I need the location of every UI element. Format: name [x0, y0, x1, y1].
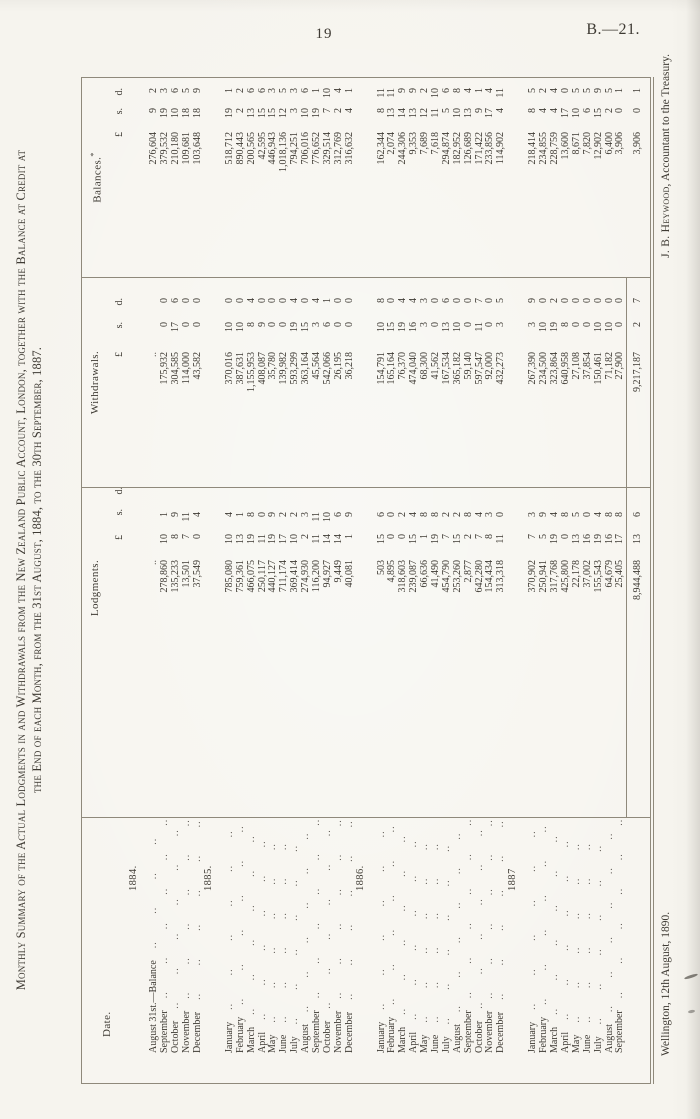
- lodg-shillings-value: 11: [258, 534, 268, 560]
- date-cell: September: [615, 818, 626, 1083]
- bal-shillings-value: 19: [160, 108, 170, 132]
- pence-symbol: d.: [115, 88, 125, 108]
- lodg-shillings-value: 13: [236, 534, 246, 560]
- lodg-cell: 64,679168: [604, 488, 615, 818]
- bal-cell: 379,532193: [160, 78, 171, 278]
- lodg-shillings-value: 0: [387, 534, 397, 560]
- lodg-shillings-value: 8: [485, 534, 495, 560]
- with-shillings-value: 0: [464, 322, 474, 352]
- bal-cell: 200,565136: [246, 78, 257, 278]
- with-shillings-value: 19: [398, 322, 408, 352]
- bal-pence-value: 6: [171, 88, 181, 108]
- bal-pounds-value: 7,618: [431, 132, 441, 210]
- lodg-pounds-value: 253,260: [453, 560, 463, 638]
- with-pounds-value: 1,155,953: [247, 352, 257, 430]
- table-row: July454,79072167,534136294,87456: [441, 78, 452, 1083]
- bal-pounds-value: 8,671: [572, 132, 582, 210]
- date-cell: September: [160, 818, 171, 1083]
- with-cell: 593,299194: [290, 278, 301, 488]
- bal-pounds-value: 109,681: [182, 132, 192, 210]
- month-label: January: [528, 1022, 538, 1053]
- month-label: June: [431, 1035, 441, 1053]
- bal-shillings-value: 4: [345, 108, 355, 132]
- with-pounds-value: 35,780: [268, 352, 278, 430]
- with-pounds-value: 363,164: [301, 352, 311, 430]
- lodg-pence-value: 8: [615, 512, 625, 534]
- dot-leaders: [605, 818, 615, 1012]
- lodg-pounds-value: 155,543: [594, 560, 604, 638]
- with-pounds-value: 304,585: [171, 352, 181, 430]
- table-row: February4,89500165,1641502,0741311: [387, 78, 398, 1083]
- lodg-shillings-value: 19: [550, 534, 560, 560]
- bal-shillings-value: 18: [193, 108, 203, 132]
- bal-cell: 171,42291: [474, 78, 485, 278]
- with-shillings-value: 15: [301, 322, 311, 352]
- with-cell: 363,164150: [301, 278, 312, 488]
- lodg-cell: 454,79072: [441, 488, 452, 818]
- with-shillings-value: 10: [225, 322, 235, 352]
- bal-pounds-value: 518,712: [225, 132, 235, 210]
- bal-cell: 42,595156: [257, 78, 268, 278]
- with-shillings-value: 15: [387, 322, 397, 352]
- bal-pence-value: 11: [387, 88, 397, 108]
- table-row: September2,8772859,14000126,689134: [463, 78, 474, 1083]
- lodg-shillings-value: 11: [496, 534, 506, 560]
- table-row: October135,23389304,585176210,180106: [171, 78, 182, 1083]
- table-row: July369,414102593,299194794,25133: [290, 78, 301, 1083]
- pounds-symbol: £: [115, 352, 125, 430]
- with-pounds-value: 43,582: [193, 352, 203, 430]
- bal-pounds-value: 171,422: [475, 132, 485, 210]
- year-row: 1886.: [355, 78, 376, 1083]
- bal-shillings-value: 5: [442, 108, 452, 132]
- with-cell: 542,06661: [322, 278, 333, 488]
- dot-leaders: [182, 818, 192, 999]
- bal-pounds-value: 218,414: [528, 132, 538, 210]
- lodg-pounds-value: 41,490: [431, 560, 441, 638]
- table-row: January503156154,791108162,344811: [376, 78, 387, 1083]
- date-cell: March: [398, 818, 409, 1083]
- lodg-shillings-value: 1: [345, 534, 355, 560]
- lodg-cell: 2,87728: [463, 488, 474, 818]
- table-row: December37,5490443,58200103,648189: [193, 78, 204, 1083]
- bal-shillings-value: 17: [561, 108, 571, 132]
- with-cell: 71,182100: [604, 278, 615, 488]
- dot-leaders: [594, 818, 604, 1024]
- lodg-pounds-value: 116,200: [312, 560, 322, 638]
- lodg-pounds-value: 250,117: [258, 560, 268, 638]
- with-pounds-value: ..: [149, 352, 159, 430]
- bal-shillings-value: 4: [496, 108, 506, 132]
- with-shillings-value: 17: [171, 322, 181, 352]
- with-shillings-value: 3: [312, 322, 322, 352]
- lodg-pence-value: 0: [258, 512, 268, 534]
- with-cell: ..: [149, 278, 160, 488]
- lodgments-header-label: Lodgments.: [89, 488, 101, 688]
- lodg-cell: 40,08119: [344, 488, 355, 818]
- totals-lodgments-shillings: 13: [633, 534, 643, 560]
- with-shillings-value: 0: [334, 322, 344, 352]
- month-label: August 31st.—Balance: [149, 960, 159, 1053]
- with-cell: 304,585176: [171, 278, 182, 488]
- with-pence-value: 4: [312, 298, 322, 322]
- date-cell: December: [344, 818, 355, 1083]
- with-pounds-value: 365,182: [453, 352, 463, 430]
- lodg-cell: 759,361131: [235, 488, 246, 818]
- bal-pounds-value: 794,251: [290, 132, 300, 210]
- bal-cell: 233,856174: [485, 78, 496, 278]
- lodg-pence-value: 9: [539, 512, 549, 534]
- withdrawals-currency-subheader: £ s. d.: [115, 278, 125, 487]
- title-line-2: the End of each Month, from the 31st Aug…: [30, 50, 45, 1090]
- with-shillings-value: 10: [453, 322, 463, 352]
- with-cell: 640,95880: [561, 278, 572, 488]
- date-cell: August: [604, 818, 615, 1083]
- bal-pence-value: 11: [377, 88, 387, 108]
- balances-header-text: Balances.: [92, 157, 104, 203]
- lodg-pounds-value: 503: [377, 560, 387, 638]
- with-cell: 92,00000: [485, 278, 496, 488]
- month-label: May: [268, 1035, 278, 1053]
- year-row: 1885.: [203, 78, 224, 1083]
- month-label: August: [301, 1024, 311, 1053]
- lodg-pence-value: 0: [496, 512, 506, 534]
- totals-row: 8,944,488 13 6 9,217,187 2 7 3,906 0 1: [626, 78, 650, 1083]
- lodg-cell: 25,405178: [615, 488, 626, 818]
- bal-pounds-value: 312,769: [334, 132, 344, 210]
- with-cell: 597,547117: [474, 278, 485, 488]
- bal-pence-value: 2: [420, 88, 430, 108]
- bal-shillings-value: 7: [323, 108, 333, 132]
- lodg-cell: 4,89500: [387, 488, 398, 818]
- with-pence-value: 0: [485, 298, 495, 322]
- with-cell: 41,56200: [431, 278, 442, 488]
- bal-cell: 890,44322: [235, 78, 246, 278]
- month-label: December: [496, 1012, 506, 1053]
- with-pence-value: 0: [236, 298, 246, 322]
- lodg-shillings-value: 0: [398, 534, 408, 560]
- bal-shillings-value: 13: [247, 108, 257, 132]
- totals-balances-pounds: 3,906: [633, 132, 643, 210]
- lodg-pence-value: 4: [550, 512, 560, 534]
- with-pounds-value: 59,140: [464, 352, 474, 430]
- date-cell: July: [290, 818, 301, 1083]
- bal-shillings-value: 3: [290, 108, 300, 132]
- date-cell: August: [452, 818, 463, 1083]
- pence-symbol: d.: [115, 298, 125, 322]
- with-shillings-value: 6: [323, 322, 333, 352]
- table-row: April425,80008640,9588013,600170: [561, 78, 572, 1083]
- table-row: August274,93023363,164150706,016106: [301, 78, 312, 1083]
- with-shillings-value: 0: [345, 322, 355, 352]
- date-header-label: Date.: [101, 818, 113, 1083]
- bal-pounds-value: 42,595: [258, 132, 268, 210]
- lodg-pounds-value: 66,636: [420, 560, 430, 638]
- lodg-pence-value: 1: [236, 512, 246, 534]
- with-cell: 76,370194: [398, 278, 409, 488]
- with-cell: [128, 278, 149, 488]
- with-pounds-value: 41,562: [431, 352, 441, 430]
- bal-cell: 3,90601: [615, 78, 626, 278]
- paper-reference: B.—21.: [586, 21, 640, 39]
- date-cell: March: [550, 818, 561, 1083]
- bal-cell: 7,6181110: [431, 78, 442, 278]
- lodg-pounds-value: 313,318: [496, 560, 506, 638]
- bal-cell: 2,0741311: [387, 78, 398, 278]
- bal-shillings-value: 10: [453, 108, 463, 132]
- lodg-cell: 313,318110: [496, 488, 507, 818]
- table-header-row: Date. Lodgments. £ s. d. Withdrawals.: [82, 78, 128, 1083]
- bal-pounds-value: 233,856: [485, 132, 495, 210]
- lodg-pence-value: 6: [334, 512, 344, 534]
- bal-pence-value: 9: [193, 88, 203, 108]
- bal-shillings-value: 17: [485, 108, 495, 132]
- with-cell: 68,30033: [420, 278, 431, 488]
- date-cell: December: [193, 818, 204, 1083]
- bal-pence-value: 6: [258, 88, 268, 108]
- bal-pounds-value: 890,443: [236, 132, 246, 210]
- year-row: 1884.: [128, 78, 149, 1083]
- bal-pence-value: 3: [290, 88, 300, 108]
- with-pence-value: 0: [583, 298, 593, 322]
- lodg-pounds-value: 37,549: [193, 560, 203, 638]
- date-cell: June: [431, 818, 442, 1083]
- with-pence-value: 0: [453, 298, 463, 322]
- date-cell: November: [182, 818, 193, 1083]
- table-row: April239,087154474,0401649,353139: [409, 78, 420, 1083]
- lodg-pence-value: 4: [193, 512, 203, 534]
- month-label: November: [182, 1011, 192, 1053]
- with-shillings-value: 8: [247, 322, 257, 352]
- dot-leaders: [485, 818, 495, 999]
- with-pence-value: 0: [182, 298, 192, 322]
- lodg-pence-value: 0: [583, 512, 593, 534]
- totals-lodgments-pence: 6: [633, 512, 643, 534]
- bal-pounds-value: 9,353: [409, 132, 419, 210]
- with-pounds-value: 593,299: [290, 352, 300, 430]
- bal-pounds-value: 1,018,136: [279, 132, 289, 210]
- bal-pence-value: 1: [345, 88, 355, 108]
- totals-withdrawals-cell: 9,217,187 2 7: [626, 278, 650, 488]
- with-cell: 432,27335: [496, 278, 507, 488]
- lodg-pence-value: 11: [312, 512, 322, 534]
- lodg-shillings-value: 14: [334, 534, 344, 560]
- table-row: February759,361131387,631100890,44322: [235, 78, 246, 1083]
- dot-leaders: [247, 818, 257, 1015]
- lodg-pence-value: 4: [475, 512, 485, 534]
- with-shillings-value: 0: [182, 322, 192, 352]
- bal-shillings-value: 15: [268, 108, 278, 132]
- page-number: 19: [302, 26, 346, 43]
- with-shillings-value: 8: [561, 322, 571, 352]
- bal-pounds-value: 103,648: [193, 132, 203, 210]
- lodg-pounds-value: 369,414: [290, 560, 300, 638]
- bal-pence-value: 4: [550, 88, 560, 108]
- bal-cell: 8,671105: [571, 78, 582, 278]
- date-cell: February: [235, 818, 246, 1083]
- bal-pence-value: 6: [301, 88, 311, 108]
- bal-pounds-value: 200,565: [247, 132, 257, 210]
- with-pounds-value: 267,390: [528, 352, 538, 430]
- bal-pounds-value: 276,604: [149, 132, 159, 210]
- lodg-pounds-value: 370,902: [528, 560, 538, 638]
- dot-leaders: [572, 818, 582, 1023]
- date-cell: October: [322, 818, 333, 1083]
- table-row: September116,200111145,56434776,652191: [312, 78, 323, 1083]
- with-shillings-value: 11: [475, 322, 485, 352]
- bal-pence-value: 5: [572, 88, 582, 108]
- lodg-shillings-value: 19: [247, 534, 257, 560]
- totals-balances-shillings: 0: [633, 108, 643, 132]
- dot-leaders: [464, 818, 474, 998]
- lodg-shillings-value: 8: [171, 534, 181, 560]
- lodg-pounds-value: 22,178: [572, 560, 582, 638]
- with-pence-value: 0: [268, 298, 278, 322]
- lodg-pence-value: 2: [279, 512, 289, 534]
- lodg-pounds-value: 37,002: [583, 560, 593, 638]
- with-cell: 35,78000: [268, 278, 279, 488]
- month-label: February: [539, 1017, 549, 1053]
- with-shillings-value: 0: [485, 322, 495, 352]
- lodg-pence-value: 8: [605, 512, 615, 534]
- pounds-symbol: £: [115, 132, 125, 210]
- lodg-pence-value: 9: [345, 512, 355, 534]
- with-shillings-value: 10: [539, 322, 549, 352]
- bal-cell: 228,75944: [550, 78, 561, 278]
- table-row: January370,90273267,39039218,41485: [528, 78, 539, 1083]
- table-row: March466,0751981,155,95384200,565136: [246, 78, 257, 1083]
- bal-pence-value: 5: [583, 88, 593, 108]
- bal-pence-value: 2: [236, 88, 246, 108]
- with-cell: 1,155,95384: [246, 278, 257, 488]
- table-row: November13,501711114,00000109,681185: [182, 78, 193, 1083]
- with-pounds-value: 408,087: [258, 352, 268, 430]
- with-pence-value: 4: [398, 298, 408, 322]
- with-pence-value: 5: [496, 298, 506, 322]
- lodg-shillings-value: 19: [268, 534, 278, 560]
- lodg-pounds-value: 440,127: [268, 560, 278, 638]
- month-label: June: [583, 1035, 593, 1053]
- bal-pounds-value: 210,180: [171, 132, 181, 210]
- lodg-shillings-value: 16: [583, 534, 593, 560]
- lodg-pence-value: 2: [398, 512, 408, 534]
- bal-cell: 162,344811: [376, 78, 387, 278]
- bal-pence-value: 6: [247, 88, 257, 108]
- month-label: July: [442, 1036, 452, 1053]
- dot-leaders: [398, 818, 408, 1015]
- with-pence-value: 4: [409, 298, 419, 322]
- month-label: April: [409, 1032, 419, 1053]
- dot-leaders: [550, 818, 560, 1015]
- document-title: Monthly Summary of the Actual Lodgments …: [14, 50, 45, 1090]
- shillings-symbol: s.: [115, 108, 125, 132]
- footnote-mark: *: [89, 152, 98, 156]
- lodg-cell: ..: [149, 488, 160, 818]
- bal-shillings-value: 15: [594, 108, 604, 132]
- with-cell: 43,58200: [193, 278, 204, 488]
- date-cell: January: [376, 818, 387, 1083]
- month-label: December: [193, 1012, 203, 1053]
- with-pence-value: 0: [572, 298, 582, 322]
- lodg-pounds-value: 425,800: [561, 560, 571, 638]
- col-header-date: Date.: [82, 818, 128, 1083]
- dot-leaders: [475, 818, 485, 1009]
- with-shillings-value: 3: [420, 322, 430, 352]
- with-pounds-value: 370,016: [225, 352, 235, 430]
- lodg-shillings-value: 7: [475, 534, 485, 560]
- dot-leaders: [431, 818, 441, 1023]
- with-shillings-value: 0: [615, 322, 625, 352]
- totals-withdrawals-pence: 7: [633, 298, 643, 322]
- lodg-pence-value: 4: [594, 512, 604, 534]
- lodg-pence-value: 5: [572, 512, 582, 534]
- with-pounds-value: 114,000: [182, 352, 192, 430]
- with-pounds-value: 387,631: [236, 352, 246, 430]
- date-cell: January: [224, 818, 235, 1083]
- lodg-pounds-value: 318,603: [398, 560, 408, 638]
- with-cell: 175,93200: [160, 278, 171, 488]
- table-row: April250,117110408,0879042,595156: [257, 78, 268, 1083]
- table-row: August64,67916871,1821006,40025: [604, 78, 615, 1083]
- bal-cell: 126,689134: [463, 78, 474, 278]
- ink-smudge: [684, 973, 698, 980]
- table-row: June37,00216037,854007,82065: [582, 78, 593, 1083]
- col-header-balances: Balances.* £ s. d.: [82, 78, 128, 278]
- with-pounds-value: 68,300: [420, 352, 430, 430]
- month-label: September: [615, 1010, 625, 1053]
- withdrawals-header-label: Withdrawals.: [89, 278, 101, 487]
- with-shillings-value: 19: [550, 322, 560, 352]
- with-pounds-value: 71,182: [605, 352, 615, 430]
- with-pounds-value: 175,932: [160, 352, 170, 430]
- lodg-shillings-value: 11: [312, 534, 322, 560]
- table-row: June41,49019841,562007,6181110: [431, 78, 442, 1083]
- signature-name: J. B. Heywood,: [660, 183, 672, 258]
- bal-shillings-value: 10: [572, 108, 582, 132]
- lodg-shillings-value: 13: [572, 534, 582, 560]
- lodg-cell: [203, 488, 224, 818]
- bal-pounds-value: 13,600: [561, 132, 571, 210]
- lodg-pounds-value: 13,501: [182, 560, 192, 638]
- with-pence-value: 2: [550, 298, 560, 322]
- bal-cell: [507, 78, 528, 278]
- month-label: March: [550, 1027, 560, 1053]
- bal-pence-value: 1: [312, 88, 322, 108]
- month-label: August: [605, 1024, 615, 1053]
- with-shillings-value: 13: [442, 322, 452, 352]
- lodg-shillings-value: 1: [420, 534, 430, 560]
- bal-pence-value: 2: [539, 88, 549, 108]
- lodg-pence-value: 8: [420, 512, 430, 534]
- with-pounds-value: 150,461: [594, 352, 604, 430]
- bal-cell: 12,902159: [593, 78, 604, 278]
- bal-pence-value: 11: [496, 88, 506, 108]
- table-row: November154,4348392,00000233,856174: [485, 78, 496, 1083]
- month-label: March: [398, 1027, 408, 1053]
- table-row: May66,6361868,300337,689122: [420, 78, 431, 1083]
- bal-cell: 776,652191: [312, 78, 323, 278]
- lodg-pounds-value: 64,679: [605, 560, 615, 638]
- lodg-cell: 253,260152: [452, 488, 463, 818]
- bal-shillings-value: 4: [550, 108, 560, 132]
- lodg-pounds-value: 40,081: [345, 560, 355, 638]
- lodg-shillings-value: 10: [290, 534, 300, 560]
- lodg-cell: 425,80008: [561, 488, 572, 818]
- bal-pence-value: 3: [268, 88, 278, 108]
- lodg-shillings-value: 7: [528, 534, 538, 560]
- lodg-pence-value: 8: [247, 512, 257, 534]
- lodg-shillings-value: 15: [453, 534, 463, 560]
